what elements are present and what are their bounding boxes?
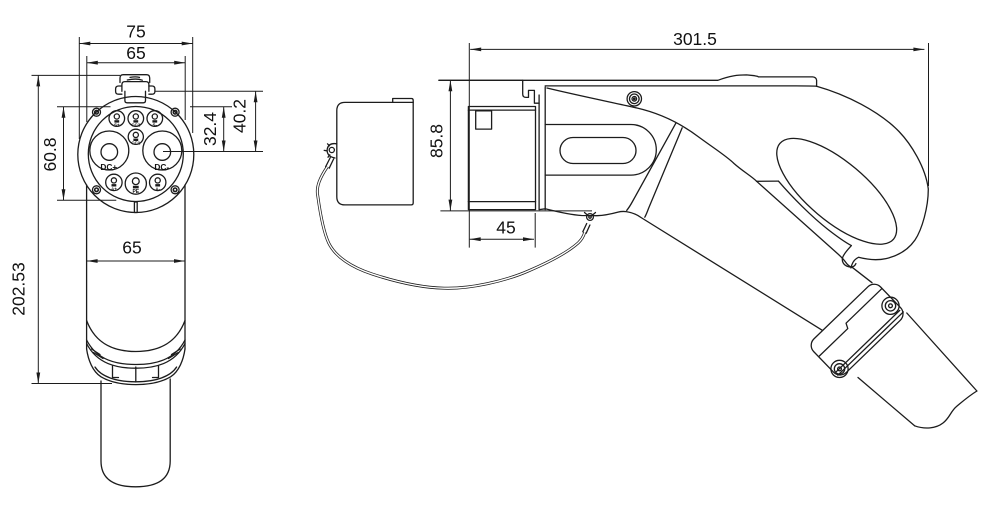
svg-text:A+: A+	[111, 187, 117, 192]
svg-text:32.4: 32.4	[200, 112, 220, 146]
svg-text:S-: S-	[153, 122, 158, 127]
svg-text:40.2: 40.2	[230, 99, 250, 133]
svg-text:202.53: 202.53	[9, 262, 29, 316]
svg-text:A-: A-	[155, 187, 160, 192]
svg-text:85.8: 85.8	[427, 124, 447, 158]
svg-text:S+: S+	[114, 122, 120, 127]
svg-text:65: 65	[122, 238, 141, 258]
svg-text:60.8: 60.8	[40, 137, 60, 171]
svg-text:65: 65	[126, 43, 145, 63]
svg-text:DC-: DC-	[154, 162, 169, 172]
svg-text:CC2: CC2	[131, 122, 140, 127]
svg-text:PE: PE	[132, 189, 139, 195]
svg-text:CC1: CC1	[131, 141, 140, 146]
svg-text:75: 75	[126, 22, 145, 42]
svg-text:45: 45	[496, 218, 515, 238]
svg-text:301.5: 301.5	[673, 29, 717, 49]
svg-text:DC+: DC+	[100, 162, 117, 172]
